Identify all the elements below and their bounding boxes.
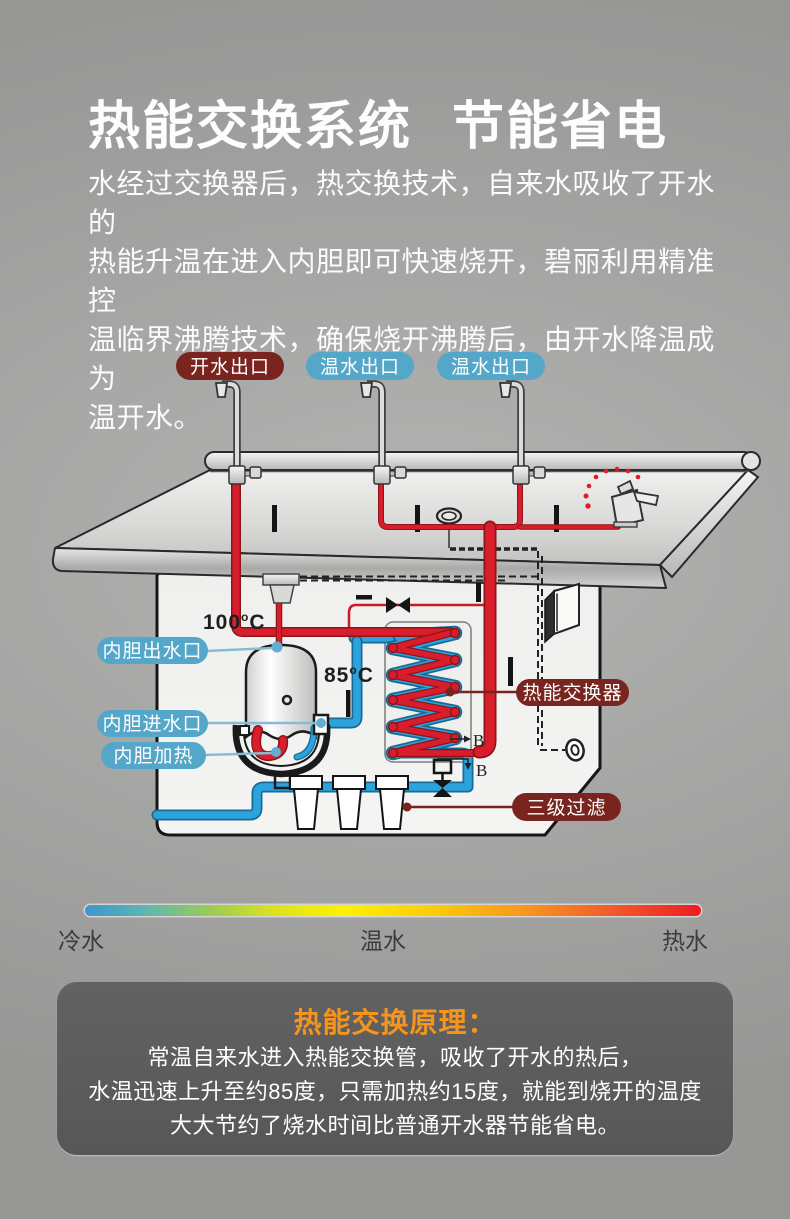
inner-tank xyxy=(236,642,328,789)
principle-box: 热能交换原理： 常温自来水进入热能交换管，吸收了开水的热后， 水温迅速上升至约8… xyxy=(57,982,733,1155)
scale-warm-label: 温水 xyxy=(360,922,406,956)
scale-hot-label: 热水 xyxy=(662,922,708,956)
faucet-nozzle xyxy=(216,383,227,397)
tick-mark xyxy=(476,583,481,602)
tank-side-fitting xyxy=(240,726,249,735)
filter-cartridges xyxy=(290,776,408,829)
principle-title: 热能交换原理： xyxy=(57,1001,733,1041)
b-mark-label: B xyxy=(476,761,487,780)
temp-85-label: 85oC xyxy=(324,663,374,687)
rail-rolled-end xyxy=(742,452,760,470)
counter-slot xyxy=(272,505,277,532)
system-diagram-svg: B B 100oC 85oC xyxy=(0,340,790,885)
tank-outlet-label: 内胆出水口 xyxy=(102,640,202,662)
faucet-nozzle xyxy=(361,383,372,397)
product-detail-page: 热能交换系统节能省电 水经过交换器后，热交换技术，自来水吸收了开水的 热能升温在… xyxy=(0,0,790,1219)
b-mark-label: B xyxy=(473,731,484,750)
boiling-outlet-label: 开水出口 xyxy=(190,356,270,378)
warm-outlet-label: 温水出口 xyxy=(320,356,400,378)
title-part-1: 热能交换系统 xyxy=(88,98,412,156)
intro-line: 水经过交换器后，热交换技术，自来水吸收了开水的 xyxy=(88,164,728,242)
backsplash-rail xyxy=(205,452,753,470)
tank-heater-label: 内胆加热 xyxy=(113,745,193,767)
system-diagram: B B 100oC 85oC xyxy=(0,340,790,885)
page-title: 热能交换系统节能省电 xyxy=(88,84,768,159)
outlet-labels: 开水出口 温水出口 温水出口 xyxy=(176,352,545,380)
filter-label: 三级过滤 xyxy=(526,797,606,819)
temperature-gradient-bar xyxy=(85,905,701,916)
temp-100-label: 100oC xyxy=(203,610,266,634)
intro-line: 热能升温在进入内胆即可快速烧开，碧丽利用精准控 xyxy=(88,242,728,320)
outlet-point-dot xyxy=(272,642,283,653)
principle-line: 大大节约了烧水时间比普通开水器节能省电。 xyxy=(57,1109,733,1143)
principle-line: 水温迅速上升至约85度，只需加热约15度，就能到烧开的温度 xyxy=(57,1075,733,1109)
heat-exchanger-label: 热能交换器 xyxy=(522,682,622,704)
tank-inlet-label: 内胆进水口 xyxy=(102,713,202,735)
tick-mark xyxy=(346,690,351,717)
tick-mark xyxy=(508,657,513,686)
minus-fitting xyxy=(356,595,372,600)
scale-cold-label: 冷水 xyxy=(58,922,104,956)
warm-outlet-label: 温水出口 xyxy=(451,356,531,378)
title-part-2: 节能省电 xyxy=(452,98,668,156)
principle-line: 常温自来水进入热能交换管，吸收了开水的热后， xyxy=(57,1041,733,1075)
temperature-scale-labels: 冷水 温水 热水 xyxy=(58,922,708,956)
faucet-nozzle xyxy=(500,383,511,397)
